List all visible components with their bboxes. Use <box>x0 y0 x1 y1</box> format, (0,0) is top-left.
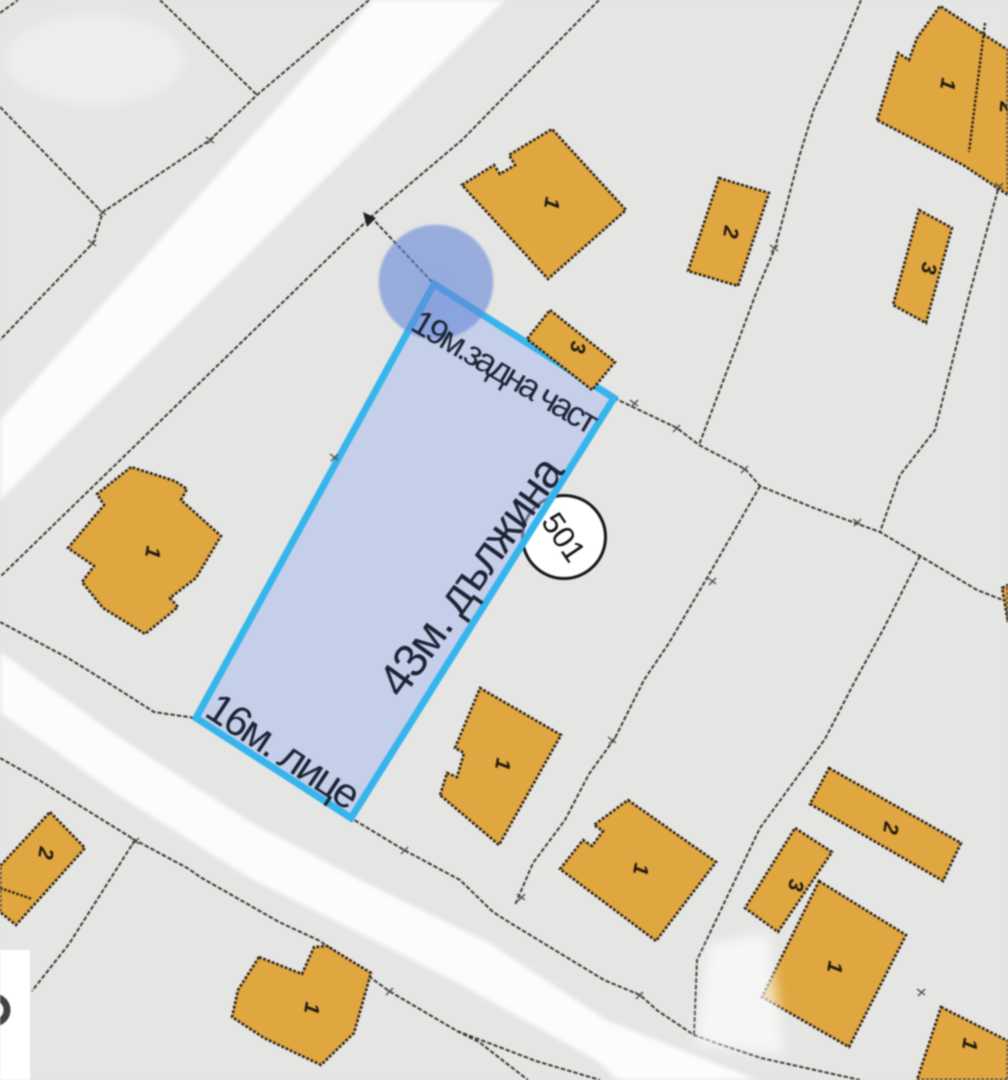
svg-text:2: 2 <box>994 100 1008 115</box>
